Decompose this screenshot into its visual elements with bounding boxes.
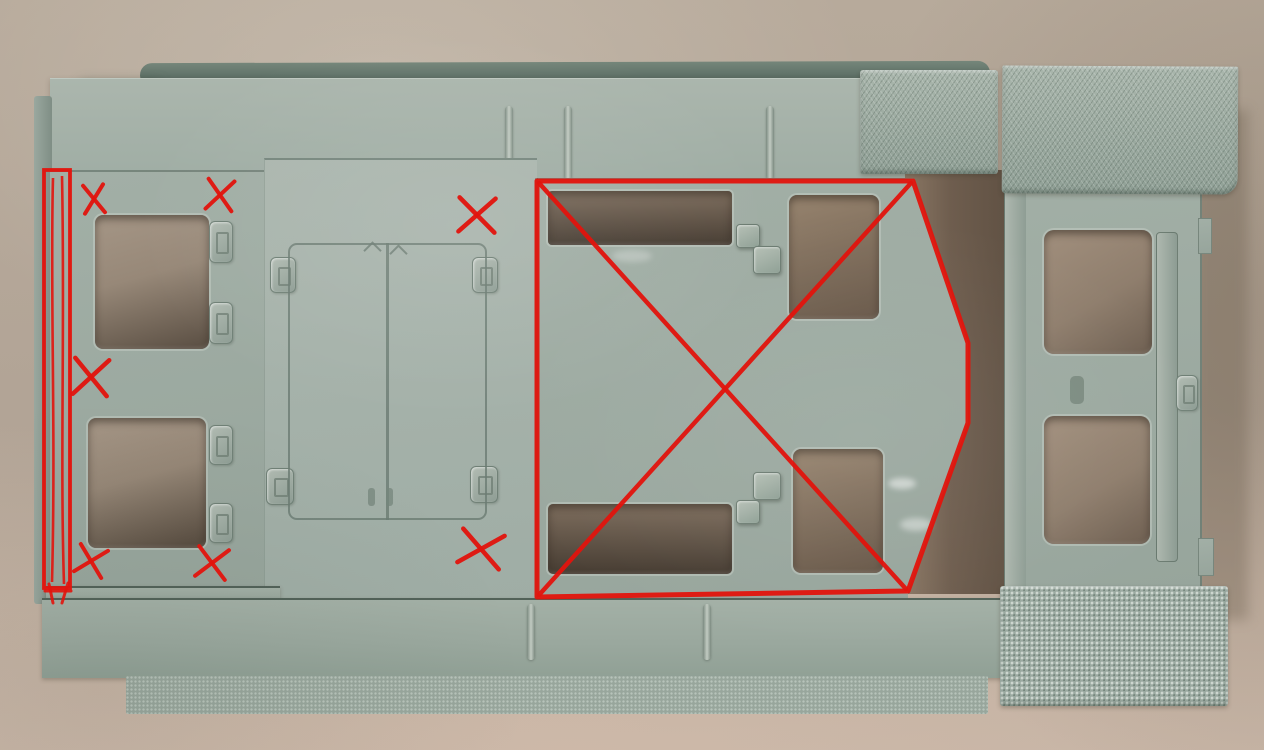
outlined-rect-inner-stroke <box>62 176 64 584</box>
x-mark <box>457 529 504 570</box>
x-mark <box>73 358 109 396</box>
outlined-rect <box>44 170 70 588</box>
crossed-region-outline <box>537 181 968 597</box>
outlined-rect-inner-stroke <box>52 178 53 582</box>
x-mark-stroke <box>74 544 108 578</box>
x-mark <box>74 544 108 578</box>
outlined-rect-extra-stroke <box>62 583 68 603</box>
photo-scene <box>0 0 1264 750</box>
annotation-overlay <box>0 0 1264 750</box>
x-mark-stroke <box>195 546 229 580</box>
x-mark <box>458 197 495 232</box>
crossed-region-diagonal <box>539 183 906 589</box>
x-mark <box>195 546 229 580</box>
x-mark <box>83 184 105 213</box>
x-mark <box>206 179 235 212</box>
x-mark-stroke <box>457 529 504 570</box>
